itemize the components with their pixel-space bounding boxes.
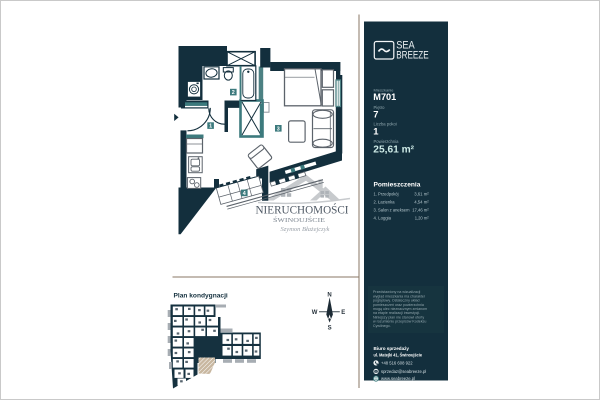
svg-text:M701: M701 — [373, 92, 396, 102]
svg-text:2. Łazienka: 2. Łazienka — [374, 200, 396, 205]
svg-text:2: 2 — [232, 90, 235, 96]
svg-text:25,61 m²: 25,61 m² — [373, 144, 414, 155]
svg-text:1. Przedpokój: 1. Przedpokój — [374, 192, 399, 197]
svg-text:Plan kondygnacji: Plan kondygnacji — [174, 293, 228, 300]
svg-text:Biuro sprzedaży: Biuro sprzedaży — [374, 346, 410, 351]
svg-text:7: 7 — [373, 109, 378, 120]
svg-text:www.seabreeze.pl: www.seabreeze.pl — [381, 376, 415, 381]
svg-text:W: W — [312, 310, 318, 316]
svg-text:1: 1 — [373, 126, 378, 137]
svg-text:4. Loggia: 4. Loggia — [374, 216, 392, 221]
svg-text:3,61 m²: 3,61 m² — [414, 192, 429, 197]
svg-text:17,46 m²: 17,46 m² — [412, 208, 429, 213]
svg-text:E: E — [341, 310, 345, 316]
svg-text:BREEZE: BREEZE — [396, 49, 429, 61]
svg-text:+48 516 608 922: +48 516 608 922 — [381, 361, 413, 366]
svg-text:ul. Matejki 41, Świnoujście: ul. Matejki 41, Świnoujście — [374, 352, 423, 358]
svg-text:4,54 m²: 4,54 m² — [414, 200, 429, 205]
svg-text:Cywilnego.: Cywilnego. — [373, 324, 391, 328]
svg-text:ŚWINOUJŚCIE: ŚWINOUJŚCIE — [273, 216, 325, 224]
svg-text:3. Salon z aneksem: 3. Salon z aneksem — [374, 208, 410, 213]
svg-text:1: 1 — [209, 124, 212, 130]
svg-text:sprzedaz@seabreeze.pl: sprzedaz@seabreeze.pl — [381, 369, 426, 374]
svg-text:Szymon Błażejczyk: Szymon Błażejczyk — [281, 226, 330, 233]
svg-text:N: N — [327, 292, 331, 298]
svg-text:Pomieszczenia: Pomieszczenia — [374, 182, 421, 189]
svg-text:4: 4 — [243, 191, 246, 197]
svg-text:S: S — [328, 326, 332, 332]
svg-text:3: 3 — [277, 126, 280, 132]
svg-text:1,20 m²: 1,20 m² — [415, 216, 430, 221]
svg-text:NIERUCHOMOŚCI: NIERUCHOMOŚCI — [256, 203, 349, 217]
